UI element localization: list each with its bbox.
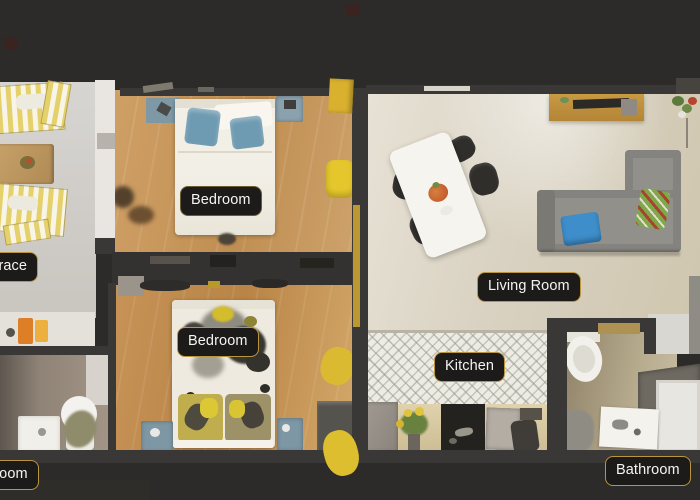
stove-mark	[454, 426, 473, 437]
table-plant-flower	[26, 158, 32, 164]
yellow-armchair	[326, 160, 354, 198]
sofa-armrest	[537, 190, 555, 252]
nightstand-item	[284, 100, 296, 109]
room-label-bedroom-1[interactable]: Bedroom	[180, 186, 262, 216]
yellow-blanket	[244, 316, 257, 327]
kitchen-plant-flower	[404, 409, 412, 417]
pillow-highlight	[229, 400, 245, 418]
wall-stub	[676, 78, 700, 94]
yellow-wardrobe	[328, 78, 354, 113]
stove	[441, 404, 485, 450]
corner-plant-leaf	[672, 96, 684, 106]
sink-tap	[634, 428, 641, 435]
mesh-debris	[252, 279, 288, 288]
room-label-kitchen[interactable]: Kitchen	[434, 352, 505, 382]
mesh-fragment	[346, 3, 359, 15]
room-label-terrace[interactable]: Terrace	[0, 252, 38, 282]
pillow-highlight	[200, 398, 218, 418]
wall-fragment	[150, 256, 190, 264]
kitchen-stool	[510, 418, 540, 453]
plant-pot	[408, 434, 420, 450]
floor-smudge	[112, 186, 134, 208]
entrance-wall-stub	[644, 318, 656, 354]
blue-cushion	[560, 212, 602, 247]
plant-stand-leg	[686, 118, 688, 148]
blue-pillow	[229, 115, 265, 150]
floor-smudge	[218, 233, 236, 245]
orange-box	[35, 320, 48, 342]
mesh-debris	[140, 280, 190, 291]
footboard	[174, 440, 273, 448]
kitchen-plant-flower	[396, 420, 404, 428]
lounger-pillow	[7, 195, 38, 212]
wall-fragment-yellow	[208, 281, 220, 288]
room-label-bathroom-1[interactable]: Bathroom	[0, 460, 39, 490]
plate	[439, 204, 454, 217]
corner-plant-flower	[688, 97, 697, 105]
bedroom2-bottom-wall	[33, 450, 368, 463]
room-label-bathroom-2[interactable]: Bathroom	[605, 456, 691, 486]
sideboard-plant	[560, 97, 569, 103]
sink-tap	[38, 428, 46, 436]
mesh-debris	[198, 87, 214, 92]
floor-smudge	[128, 206, 154, 224]
tile-edge	[366, 330, 550, 333]
pillow	[178, 394, 223, 442]
bed	[172, 300, 275, 448]
room-label-living-room[interactable]: Living Room	[477, 272, 581, 302]
room-label-bedroom-2[interactable]: Bedroom	[177, 327, 259, 357]
counter-item	[520, 408, 542, 420]
terrace-bathroom-wall	[0, 346, 112, 355]
door-gap	[97, 133, 115, 149]
shelf-item	[6, 328, 15, 337]
nightstand	[277, 418, 303, 451]
mesh-fragment	[3, 37, 18, 50]
bathroom-shelf	[598, 323, 640, 334]
sideboard-box	[621, 99, 637, 116]
toilet-bowl	[571, 343, 598, 374]
yellow-door	[353, 205, 360, 327]
bedroom2-left-wall	[108, 283, 116, 453]
bathroom2-sink	[599, 407, 659, 450]
stove-mark	[449, 438, 457, 444]
terrace-right-wall	[95, 80, 115, 240]
kitchen-bathroom-wall	[547, 320, 567, 452]
nightstand-item	[150, 428, 160, 437]
window-ledge	[424, 86, 470, 91]
sofa-shadow	[540, 250, 680, 256]
blue-pillow	[184, 107, 221, 147]
wall-fragment	[210, 255, 236, 267]
dark-spot	[260, 384, 270, 393]
nightstand-item	[282, 424, 290, 432]
sink-detail	[612, 419, 629, 430]
yellow-blanket	[212, 306, 234, 322]
pillow	[225, 394, 271, 442]
right-edge-wall	[689, 276, 700, 354]
bathtub	[656, 380, 700, 452]
orange-box	[18, 318, 33, 344]
wall-fragment	[300, 258, 334, 268]
kitchen-plant-flower	[415, 407, 424, 416]
duvet-fold	[178, 151, 272, 153]
living-room-top-wall	[366, 85, 700, 94]
floorplan-viewer[interactable]: Terrace Bedroom Bedroom Living Room Kitc…	[0, 0, 700, 500]
corner-plant-flower	[678, 111, 686, 118]
